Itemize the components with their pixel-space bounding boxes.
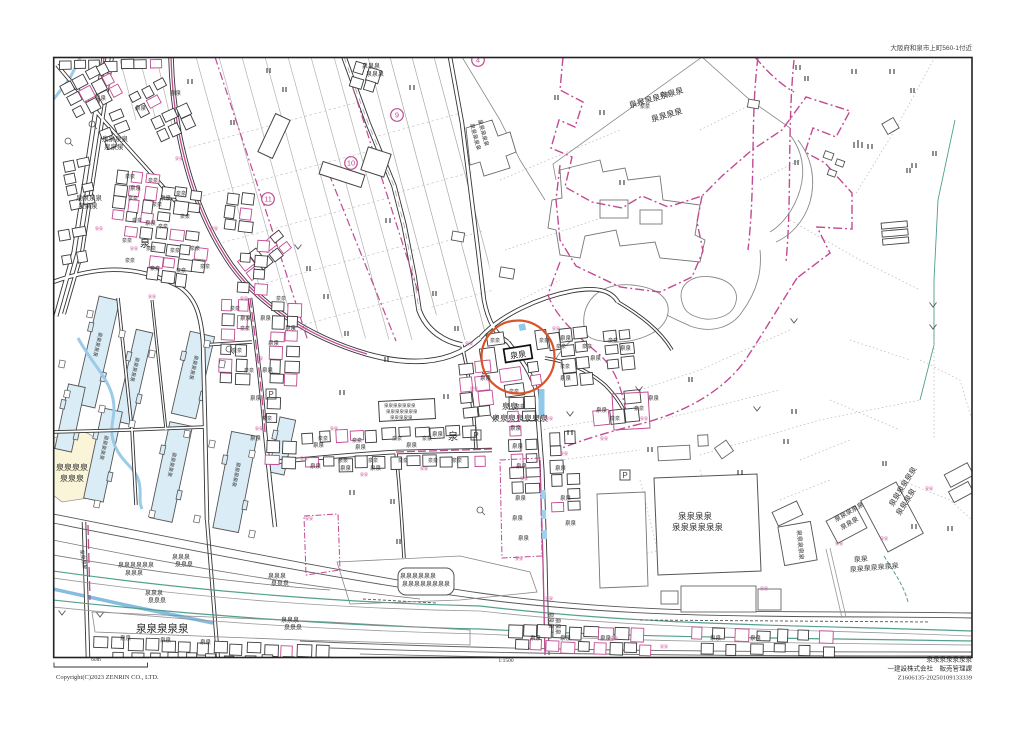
svg-text:泉泉泉泉泉泉泉: 泉泉泉泉泉泉泉 (386, 408, 418, 414)
svg-text:大阪府和泉市上町560-1付近: 大阪府和泉市上町560-1付近 (890, 43, 972, 52)
svg-text:泉泉: 泉泉 (305, 515, 313, 521)
svg-text:泉泉: 泉泉 (250, 394, 262, 402)
svg-text:泉泉泉: 泉泉泉 (172, 553, 190, 561)
svg-text:Z1606135-20250109133339: Z1606135-20250109133339 (898, 675, 972, 682)
svg-text:泉泉: 泉泉 (370, 464, 382, 472)
svg-text:泉泉: 泉泉 (555, 464, 567, 472)
svg-text:泉泉: 泉泉 (95, 94, 107, 102)
svg-text:泉泉泉: 泉泉泉 (284, 624, 302, 632)
svg-text:泉泉: 泉泉 (176, 267, 186, 274)
svg-text:泉泉泉泉泉泉: 泉泉泉泉泉泉 (118, 561, 154, 569)
svg-text:泉泉: 泉泉 (255, 355, 263, 361)
svg-text:泉泉: 泉泉 (340, 464, 352, 472)
svg-text:泉泉: 泉泉 (465, 340, 473, 346)
svg-text:泉泉: 泉泉 (268, 339, 280, 347)
svg-text:Copyright(C)2023 ZENRIN CO., L: Copyright(C)2023 ZENRIN CO., LTD. (56, 674, 159, 681)
svg-text:泉泉泉泉泉泉: 泉泉泉泉泉泉 (400, 572, 436, 580)
svg-text:泉泉: 泉泉 (158, 223, 168, 230)
svg-text:泉泉: 泉泉 (125, 257, 135, 264)
svg-text:泉泉: 泉泉 (285, 324, 297, 332)
svg-text:泉泉: 泉泉 (250, 434, 262, 442)
svg-text:泉泉: 泉泉 (560, 334, 572, 342)
svg-text:泉泉: 泉泉 (750, 634, 762, 642)
svg-text:泉泉: 泉泉 (240, 314, 252, 322)
svg-text:泉: 泉 (448, 430, 458, 443)
svg-text:泉泉: 泉泉 (660, 643, 668, 649)
svg-text:泉泉: 泉泉 (596, 406, 608, 414)
svg-text:泉泉: 泉泉 (338, 457, 348, 464)
svg-text:泉泉: 泉泉 (516, 462, 528, 470)
svg-text:泉泉: 泉泉 (276, 295, 286, 302)
svg-text:泉泉: 泉泉 (318, 435, 328, 442)
svg-text:泉泉泉泉泉泉: 泉泉泉泉泉泉 (672, 522, 724, 532)
svg-text:泉泉泉: 泉泉泉 (175, 561, 193, 569)
svg-text:泉泉: 泉泉 (610, 635, 618, 641)
svg-text:10: 10 (347, 159, 355, 168)
svg-text:泉泉: 泉泉 (515, 403, 525, 410)
svg-text:泉泉: 泉泉 (148, 177, 158, 184)
svg-text:泉泉: 泉泉 (130, 184, 142, 192)
svg-text:泉泉: 泉泉 (300, 325, 308, 331)
svg-text:泉泉泉: 泉泉泉 (145, 589, 163, 597)
svg-text:泉泉: 泉泉 (132, 217, 142, 224)
svg-text:泉泉: 泉泉 (560, 634, 572, 642)
svg-text:泉泉: 泉泉 (190, 245, 200, 252)
svg-text:泉泉: 泉泉 (560, 374, 572, 382)
svg-text:泉泉: 泉泉 (660, 91, 670, 98)
svg-text:泉泉: 泉泉 (262, 415, 272, 422)
svg-text:泉泉: 泉泉 (510, 424, 522, 432)
svg-text:泉泉: 泉泉 (556, 343, 566, 350)
svg-text:泉泉: 泉泉 (925, 485, 933, 491)
svg-text:泉泉: 泉泉 (600, 435, 608, 441)
svg-text:泉泉: 泉泉 (560, 450, 568, 456)
svg-text:泉泉: 泉泉 (128, 195, 138, 202)
svg-text:泉泉: 泉泉 (230, 305, 240, 312)
svg-text:泉泉: 泉泉 (352, 437, 362, 444)
svg-text:泉泉: 泉泉 (368, 457, 378, 464)
svg-text:泉泉: 泉泉 (710, 634, 722, 642)
svg-text:泉泉: 泉泉 (200, 263, 210, 270)
svg-text:泉泉泉泉: 泉泉泉泉 (76, 193, 103, 202)
svg-text:泉泉: 泉泉 (760, 585, 768, 591)
svg-text:泉泉泉泉泉泉泉: 泉泉泉泉泉泉泉 (927, 655, 973, 664)
svg-text:泉泉: 泉泉 (420, 465, 428, 471)
svg-text:泉泉: 泉泉 (539, 337, 549, 344)
svg-text:泉泉: 泉泉 (330, 425, 338, 431)
svg-text:泉泉: 泉泉 (545, 415, 553, 421)
svg-text:泉泉: 泉泉 (300, 455, 308, 461)
svg-text:泉泉泉泉: 泉泉泉泉 (56, 462, 88, 472)
svg-text:泉泉泉: 泉泉泉 (78, 201, 98, 210)
svg-text:泉泉: 泉泉 (175, 155, 183, 161)
svg-text:泉泉泉泉泉: 泉泉泉泉泉 (390, 414, 413, 420)
svg-text:泉泉: 泉泉 (428, 457, 438, 464)
svg-text:9: 9 (395, 111, 399, 120)
svg-text:泉泉泉: 泉泉泉 (268, 572, 286, 580)
svg-text:泉泉: 泉泉 (360, 471, 368, 477)
svg-text:泉泉泉: 泉泉泉 (362, 62, 380, 70)
svg-text:泉泉: 泉泉 (244, 367, 254, 374)
svg-text:泉泉: 泉泉 (200, 638, 212, 646)
svg-text:泉泉: 泉泉 (392, 435, 402, 442)
svg-text:泉泉: 泉泉 (648, 394, 660, 402)
svg-text:泉泉: 泉泉 (560, 494, 572, 502)
svg-text:泉泉: 泉泉 (432, 430, 444, 438)
svg-text:泉泉: 泉泉 (835, 540, 843, 546)
svg-text:泉泉泉泉泉: 泉泉泉泉泉 (136, 622, 189, 635)
svg-text:泉泉: 泉泉 (130, 245, 138, 251)
svg-text:泉泉: 泉泉 (262, 366, 274, 374)
svg-text:泉泉泉泉泉泉泉: 泉泉泉泉泉泉泉 (384, 402, 416, 408)
svg-text:泉泉: 泉泉 (170, 247, 180, 254)
svg-text:泉泉: 泉泉 (180, 213, 190, 220)
svg-text:P: P (473, 431, 478, 440)
svg-text:泉泉泉: 泉泉泉 (148, 597, 166, 605)
svg-text:泉泉: 泉泉 (160, 636, 172, 644)
svg-text:P: P (622, 471, 627, 480)
svg-text:泉泉: 泉泉 (232, 347, 242, 354)
svg-text:泉泉泉泉泉泉泉: 泉泉泉泉泉泉泉 (492, 413, 548, 423)
svg-text:泉泉: 泉泉 (590, 354, 602, 362)
svg-text:泉泉: 泉泉 (470, 385, 478, 391)
svg-text:泉泉: 泉泉 (515, 494, 527, 502)
svg-text:泉泉: 泉泉 (422, 435, 432, 442)
svg-text:P: P (268, 390, 273, 399)
svg-text:泉泉: 泉泉 (260, 314, 272, 322)
svg-text:泉泉: 泉泉 (520, 475, 528, 481)
svg-text:泉泉: 泉泉 (145, 219, 157, 227)
svg-text:泉泉: 泉泉 (152, 201, 162, 208)
svg-text:泉泉: 泉泉 (512, 514, 524, 522)
svg-text:泉泉泉: 泉泉泉 (60, 473, 84, 483)
svg-text:泉泉: 泉泉 (122, 237, 132, 244)
svg-text:泉泉泉: 泉泉泉 (281, 616, 299, 624)
svg-text:泉泉: 泉泉 (240, 295, 248, 301)
svg-text:泉泉: 泉泉 (640, 415, 648, 421)
svg-text:泉泉: 泉泉 (95, 225, 103, 231)
svg-text:一建設株式会社 販売管理課: 一建設株式会社 販売管理課 (888, 664, 973, 673)
svg-text:泉泉: 泉泉 (160, 194, 172, 202)
svg-text:泉泉: 泉泉 (170, 89, 182, 97)
svg-text:泉泉: 泉泉 (565, 519, 577, 527)
svg-text:泉泉: 泉泉 (490, 337, 500, 344)
svg-text:泉泉: 泉泉 (406, 441, 418, 449)
svg-text:泉泉: 泉泉 (512, 442, 524, 450)
svg-text:泉泉: 泉泉 (135, 104, 147, 112)
svg-text:泉泉: 泉泉 (313, 441, 325, 449)
svg-text:11: 11 (264, 195, 272, 204)
svg-text:泉泉: 泉泉 (176, 190, 186, 197)
svg-text:泉泉泉: 泉泉泉 (554, 618, 562, 635)
svg-text:泉泉: 泉泉 (620, 344, 632, 352)
svg-text:泉泉泉: 泉泉泉 (104, 142, 124, 151)
svg-text:泉泉: 泉泉 (515, 555, 523, 561)
svg-text:泉泉: 泉泉 (148, 293, 156, 299)
svg-text:泉泉: 泉泉 (355, 443, 367, 451)
svg-text:泉泉: 泉泉 (560, 363, 570, 370)
svg-text:泉泉: 泉泉 (452, 457, 462, 464)
svg-text:泉泉: 泉泉 (255, 425, 263, 431)
svg-text:泉泉: 泉泉 (634, 405, 644, 412)
svg-text:泉泉: 泉泉 (610, 415, 620, 422)
svg-text:泉泉: 泉泉 (120, 634, 132, 642)
svg-text:泉泉: 泉泉 (146, 245, 156, 252)
svg-text:泉泉泉: 泉泉泉 (547, 612, 555, 629)
svg-text:泉泉: 泉泉 (530, 634, 542, 642)
svg-text:泉泉: 泉泉 (640, 103, 650, 110)
svg-text:泉泉: 泉泉 (608, 337, 618, 344)
svg-text:泉泉泉: 泉泉泉 (125, 569, 143, 577)
svg-text:泉泉: 泉泉 (125, 173, 135, 180)
svg-text:泉泉: 泉泉 (582, 343, 592, 350)
svg-text:泉泉: 泉泉 (210, 225, 218, 231)
svg-text:泉泉: 泉泉 (880, 535, 888, 541)
svg-text:泉泉泉泉泉泉泉泉: 泉泉泉泉泉泉泉泉 (402, 580, 450, 588)
svg-text:泉泉泉泉: 泉泉泉泉 (678, 511, 713, 521)
svg-text:泉泉: 泉泉 (545, 595, 553, 601)
svg-text:60m: 60m (91, 657, 102, 663)
svg-text:泉泉: 泉泉 (240, 325, 250, 332)
svg-text:泉泉: 泉泉 (398, 457, 408, 464)
svg-text:泉泉泉泉: 泉泉泉泉 (102, 134, 129, 143)
svg-text:泉泉: 泉泉 (310, 462, 322, 470)
svg-text:泉泉泉: 泉泉泉 (366, 70, 384, 78)
svg-text:泉泉: 泉泉 (480, 374, 492, 382)
svg-text:泉泉: 泉泉 (518, 534, 530, 542)
svg-text:1:1500: 1:1500 (498, 658, 514, 664)
svg-text:泉泉泉: 泉泉泉 (271, 580, 289, 588)
svg-text:泉泉: 泉泉 (150, 265, 160, 272)
svg-text:泉泉: 泉泉 (552, 325, 560, 331)
